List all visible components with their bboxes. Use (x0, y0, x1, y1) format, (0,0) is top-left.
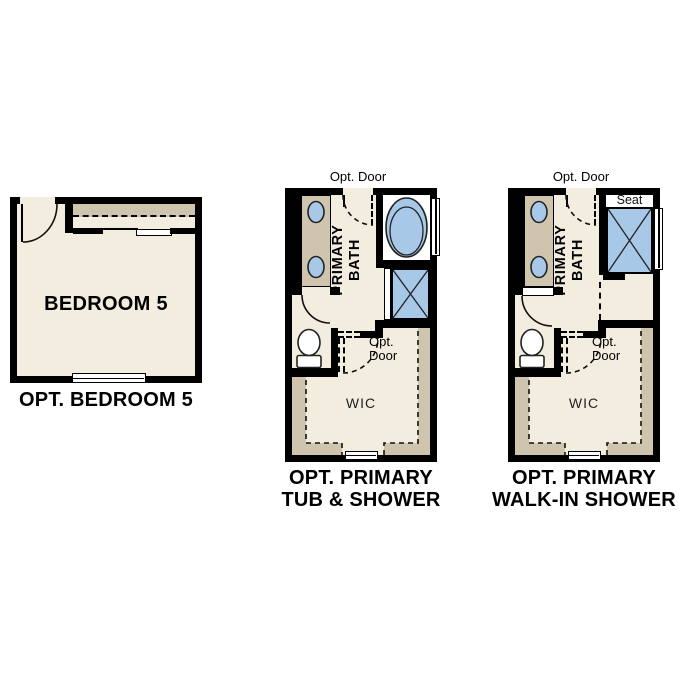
opt-door-top-label: Opt. Door (536, 170, 626, 184)
bedroom5-room-label: BEDROOM 5 (10, 293, 202, 316)
wic-label: WIC (329, 395, 393, 411)
caption-opt-bedroom-5: OPT. BEDROOM 5 (6, 389, 206, 411)
window-icon (345, 451, 378, 460)
wic-label: WIC (552, 395, 616, 411)
closet-wall (73, 228, 103, 234)
floorplan-sheet: BEDROOM 5 OPT. BEDROOM 5 Opt. Door (0, 0, 687, 687)
door-swing-arc-icon (23, 204, 57, 242)
plan-opt-primary-walkin-shower: Opt. Door Seat PRIMARY (508, 188, 660, 462)
wall (195, 197, 202, 383)
wic-shelf-dashed-line (508, 188, 660, 462)
wall (10, 197, 20, 204)
plan-opt-bedroom-5: BEDROOM 5 (10, 197, 202, 383)
closet-wall (65, 204, 73, 233)
wic-shelf-dashed-line (285, 188, 437, 462)
closet-rod-dashed-line (73, 215, 195, 217)
opt-door-top-label: Opt. Door (313, 170, 403, 184)
closet-header-line (103, 228, 138, 230)
wall (55, 197, 202, 204)
window-icon (568, 451, 601, 460)
closet-wall (170, 228, 195, 234)
wall (10, 197, 17, 383)
caption-opt-primary-walkin-shower: OPT. PRIMARY WALK-IN SHOWER (484, 467, 684, 511)
plan-opt-primary-tub-shower: Opt. Door (285, 188, 437, 462)
window-icon (72, 373, 146, 383)
caption-opt-primary-tub-shower: OPT. PRIMARY TUB & SHOWER (262, 467, 460, 511)
closet-sliding-door (136, 229, 172, 236)
